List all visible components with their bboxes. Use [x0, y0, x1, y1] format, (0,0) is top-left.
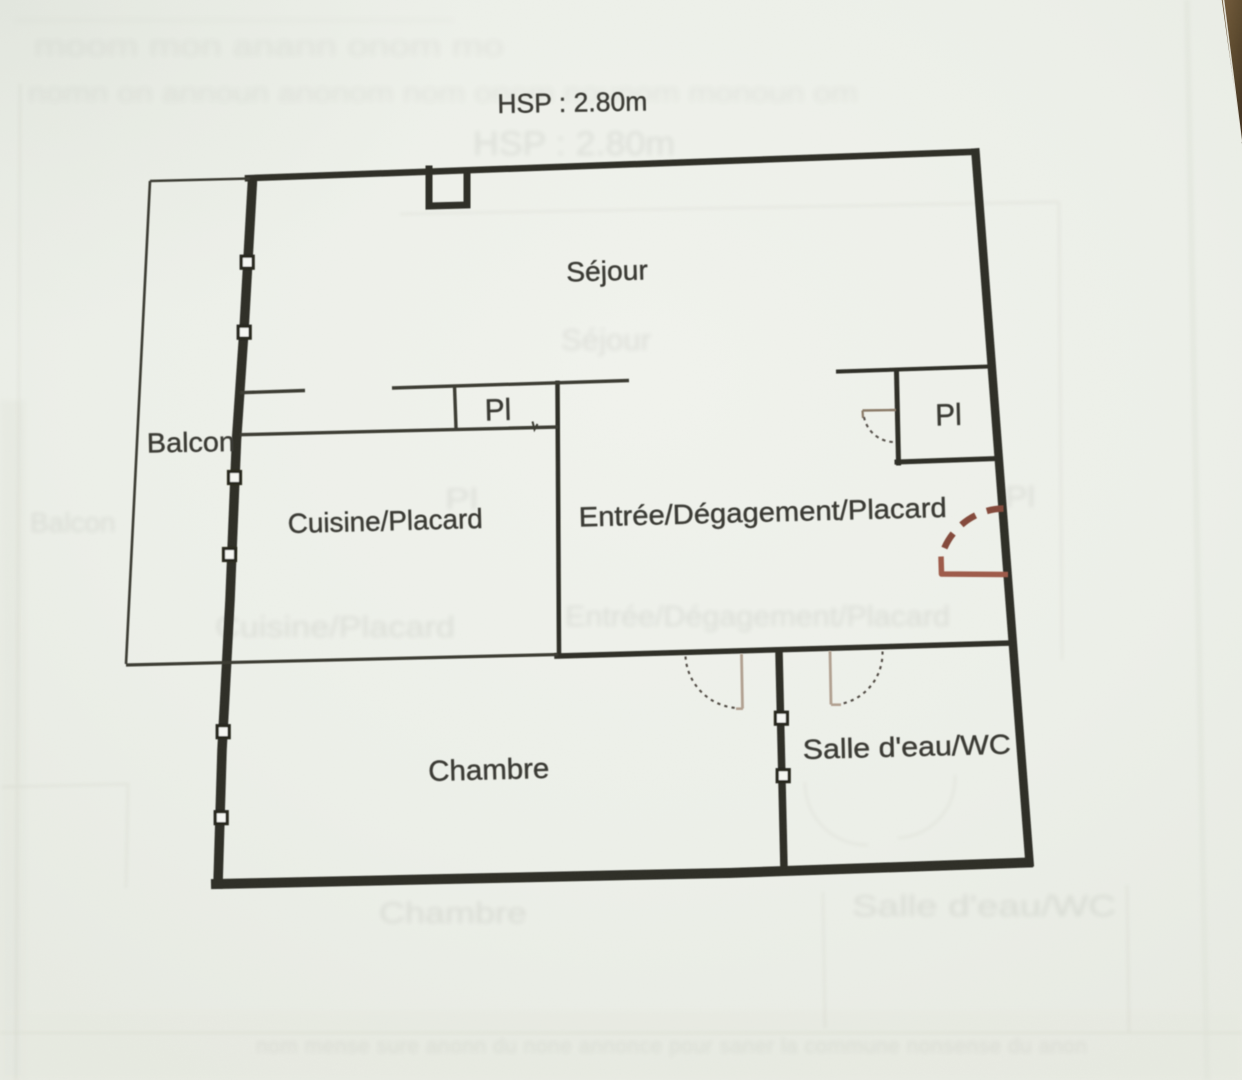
- svg-text:nomn on announ anonom nom onom: nomn on announ anonom nom onom nounom mo…: [28, 77, 858, 108]
- svg-text:Pl: Pl: [1005, 481, 1035, 514]
- svg-text:Pl: Pl: [484, 393, 511, 428]
- svg-text:Cuisine/Placard: Cuisine/Placard: [287, 503, 483, 539]
- svg-text:Chambre: Chambre: [428, 753, 550, 788]
- svg-text:Pl: Pl: [935, 398, 962, 433]
- svg-text:Séjour: Séjour: [566, 254, 648, 287]
- svg-text:Entrée/Dégagement/Placard: Entrée/Dégagement/Placard: [565, 601, 950, 633]
- svg-text:Balcon: Balcon: [147, 426, 236, 459]
- svg-text:Salle d'eau/WC: Salle d'eau/WC: [802, 729, 1011, 765]
- svg-text:Balcon: Balcon: [30, 507, 116, 538]
- svg-text:Chambre: Chambre: [379, 897, 527, 930]
- svg-text:HSP : 2.80m: HSP : 2.80m: [473, 125, 675, 163]
- svg-text:HSP : 2.80m: HSP : 2.80m: [497, 86, 648, 119]
- svg-text:Séjour: Séjour: [561, 324, 651, 357]
- svg-text:Cuisine/Placard: Cuisine/Placard: [215, 611, 455, 644]
- svg-text:Salle d'eau/WC: Salle d'eau/WC: [852, 890, 1116, 923]
- svg-text:moom mon anann onom mo: moom mon anann onom mo: [34, 30, 504, 63]
- svg-text:nom mense sure anonn du none a: nom mense sure anonn du none annonce pou…: [256, 1035, 1087, 1058]
